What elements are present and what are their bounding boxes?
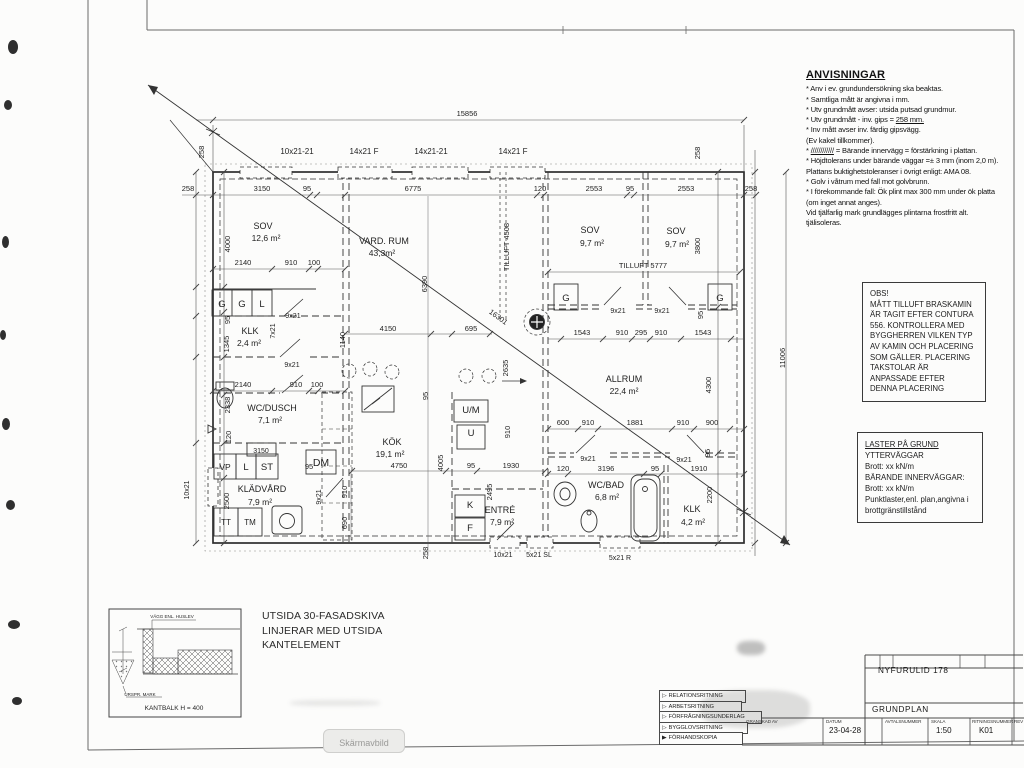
plan-label: 43,3m² [369, 248, 396, 258]
plan-label: 4150 [380, 324, 397, 333]
plan-label: 910 [582, 418, 595, 427]
text-line: * Inv mått avser inv. färdig gipsvägg. [806, 125, 1018, 135]
plan-label: 1881 [627, 418, 644, 427]
scan-smudge [737, 641, 765, 655]
plan-label: 19,1 m² [376, 449, 405, 459]
plan-label: 100 [311, 380, 324, 389]
plan-label: 95 [696, 311, 705, 319]
laster-pa-grund-box: LASTER PÅ GRUNDYTTERVÄGGARBrott: xx kN/m… [857, 432, 983, 523]
plan-label: 11006 [778, 348, 787, 368]
plan-label: 95 [303, 184, 311, 193]
anvisningar-notes: ANVISNINGAR * Anv i ev. grundundersöknin… [806, 70, 1018, 228]
plan-label: L [259, 299, 264, 310]
plan-label: 4005 [436, 455, 445, 472]
plan-label: 9x21 [285, 313, 300, 320]
plan-label: 3150 [254, 184, 271, 193]
text-line: (Ev kakel tillkommer). [806, 136, 1018, 146]
plan-label: 910 [285, 258, 298, 267]
plan-label: 9,7 m² [580, 238, 604, 248]
plan-label: 3196 [598, 464, 615, 473]
text-line: ANPASSADE EFTER [870, 374, 978, 385]
scan-artifact [12, 697, 22, 705]
scan-artifact [4, 100, 12, 110]
text-line: TAKSTOLAR ÄR [870, 363, 978, 374]
text-line: Vid tjälfarlig mark grundlägges plintarn… [806, 208, 1018, 218]
plan-label: 258 [182, 184, 195, 193]
plan-label: 3800 [693, 238, 702, 255]
plan-label: KLÄDVÅRD [238, 484, 287, 494]
plan-label: 22,4 m² [610, 386, 639, 396]
text-line: DENNA PLACERING [870, 384, 978, 395]
plan-label: 910 [290, 380, 303, 389]
plan-label: 900 [706, 418, 719, 427]
plan-label: F [467, 523, 473, 534]
avtalsnummer-label: AVTALSNUMMER [885, 719, 921, 724]
plan-label: 95 [421, 392, 430, 400]
plan-label: 14x21 F [499, 147, 528, 156]
plan-label: KLK [683, 504, 700, 514]
text-line: * //////////// = Bärande innervägg = för… [806, 146, 1018, 156]
scan-smudge [700, 690, 810, 728]
plan-label: 690 [340, 517, 349, 530]
plan-label: 6,8 m² [595, 492, 619, 502]
screenshot-filename: Skärmavbild [339, 738, 389, 748]
plan-label: U [468, 428, 475, 439]
plan-label: 695 [465, 324, 478, 333]
plan-label: 258 [421, 547, 430, 560]
plan-label: 120 [224, 431, 233, 444]
datum-value: 23-04-28 [829, 726, 861, 735]
ritningsnummer-value: K01 [979, 726, 993, 735]
arrow-icon: ▷ [662, 702, 667, 711]
plan-label: 10x21-21 [280, 147, 314, 156]
rev-label: REV [1014, 719, 1023, 724]
plan-label: G [562, 293, 569, 304]
text-line: * Samtliga mått är angivna i mm. [806, 95, 1018, 105]
plan-label: 910 [677, 418, 690, 427]
plan-label: 910 [655, 328, 668, 337]
plan-label: 6390 [420, 276, 429, 293]
text-line: * Höjdtolerans under bärande väggar =± 3… [806, 156, 1018, 166]
plan-label: 15856 [457, 109, 478, 118]
text-line: tjälisoleras. [806, 218, 1018, 228]
ritningsnummer-label: RITNINGSNUMMER [972, 719, 1013, 724]
plan-label: TILLUFT 4508 [502, 223, 511, 271]
plan-label: 10x21 [493, 552, 512, 559]
plan-label: 120 [557, 464, 570, 473]
plan-label: U/M [462, 405, 480, 416]
plan-label: 258 [693, 147, 702, 160]
plan-label: 2500 [222, 493, 231, 510]
text-line: SOM GÄLLER. PLACERING [870, 353, 978, 364]
plan-label: 95 [223, 316, 232, 324]
plan-label: 5x21 SL [526, 552, 552, 559]
scan-artifact [8, 620, 20, 629]
plan-label: 5x21 R [609, 555, 631, 562]
plan-label: 600 [557, 418, 570, 427]
plan-label: 2,4 m² [237, 338, 261, 348]
anvisningar-title: ANVISNINGAR [806, 70, 1018, 80]
plan-label: WC/BAD [588, 480, 625, 490]
plan-label: 1345 [222, 336, 231, 353]
plan-label: VP [219, 462, 231, 472]
plan-label: ENTRÉ [485, 505, 516, 515]
text-line: OBS! [870, 289, 978, 300]
plan-label: 9x21 [284, 362, 299, 369]
text-line: 556. KONTROLLERA MED [870, 321, 978, 332]
plan-label: 4300 [704, 377, 713, 394]
text-line: * Utv grundmått - inv. gips = 258 mm. [806, 115, 1018, 125]
text-line: Brott: xx kN/m [865, 461, 975, 472]
text-line: * Utv grundmått avser: utsida putsad gru… [806, 105, 1018, 115]
plan-label: 120 [534, 184, 547, 193]
text-line: Brott: xx kN/m [865, 483, 975, 494]
project-name: NYFURULID 178 [878, 666, 949, 675]
plan-label: 4,2 m² [681, 517, 705, 527]
text-line: BYGGHERREN VILKEN TYP [870, 331, 978, 342]
plan-label: 2553 [678, 184, 695, 193]
plan-label: KANTBALK H = 400 [145, 705, 204, 712]
text-line: Punktlaster,enl. plan,angivna i [865, 494, 975, 505]
scan-artifact [2, 418, 10, 430]
exterior-walls [205, 164, 752, 551]
plan-label: 95 [626, 184, 634, 193]
plan-label: 258 [197, 146, 206, 159]
obs-note-box: OBS!MÅTT TILLUFT BRASKAMINÄR TAGIT EFTER… [862, 282, 986, 402]
text-line: AV KAMIN OCH PLACERING [870, 342, 978, 353]
plan-label: 2140 [235, 380, 252, 389]
plan-label: 910 [503, 426, 512, 439]
interior-walls [213, 172, 737, 543]
text-line: brottgränstillstånd [865, 505, 975, 516]
skala-value: 1:50 [936, 726, 952, 735]
drawing-title: GRUNDPLAN [872, 705, 929, 714]
text-line: * Anv i ev. grundundersökning ska beakta… [806, 84, 1018, 94]
detail-note-line: LINJERAR MED UTSIDA [262, 624, 385, 639]
plan-label: 2495 [485, 484, 494, 501]
plan-label: 9,7 m² [665, 239, 689, 249]
plan-label: 1140 [338, 332, 347, 348]
plan-label: 9x21 [676, 457, 691, 464]
text-line: Plattans buktighetstoleranser i övrigt e… [806, 167, 1018, 177]
plan-label: 2553 [586, 184, 603, 193]
plan-label: 2140 [235, 258, 252, 267]
plan-label: 258 [745, 184, 758, 193]
arrow-icon: ▷ [662, 723, 667, 732]
plan-label: G [218, 299, 225, 310]
plan-label: ST [261, 462, 273, 473]
plan-label: VARD. RUM [359, 236, 409, 246]
datum-label: DATUM [826, 719, 842, 724]
anvisningar-lines: * Anv i ev. grundundersökning ska beakta… [806, 84, 1018, 228]
scan-artifact [2, 236, 9, 248]
arrow-filled-icon: ▶ [662, 734, 667, 743]
plan-label: 1910 [691, 464, 708, 473]
obs-lines: OBS!MÅTT TILLUFT BRASKAMINÄR TAGIT EFTER… [870, 289, 978, 395]
plan-label: 7,1 m² [258, 415, 282, 425]
plan-label: 14x21-21 [414, 147, 448, 156]
plan-label: 14x21 F [350, 147, 379, 156]
plan-label: G [238, 299, 245, 310]
plan-label: VÄGG ENL. HUSLEV [150, 613, 194, 619]
plan-label: 10x21 [184, 480, 191, 499]
plan-label: 7,9 m² [490, 517, 514, 527]
plan-label: 95 [703, 449, 712, 457]
plan-label: 910 [340, 486, 349, 499]
plan-label: TILLUFT 5777 [619, 261, 667, 270]
plan-label: 6775 [405, 184, 422, 193]
plan-label: 9x21 [316, 489, 323, 504]
text-line: YTTERVÄGGAR [865, 450, 975, 461]
text-line: LASTER PÅ GRUND [865, 439, 975, 450]
plan-label: 2635 [501, 360, 510, 377]
plan-label: 1543 [574, 328, 591, 337]
skala-label: SKALA [931, 719, 945, 724]
plan-label: 1543 [695, 328, 712, 337]
plan-label: 295 [635, 328, 648, 337]
detail-note-line: KANTELEMENT [262, 638, 385, 653]
scan-artifact [6, 500, 15, 510]
plan-label: 2338 [223, 397, 232, 414]
plan-label: 7x21 [270, 323, 277, 338]
door-symbols [280, 287, 704, 540]
plan-label: 3150 [253, 448, 269, 455]
plan-label: 100 [308, 258, 321, 267]
plan-label: 95 [467, 461, 475, 470]
plan-label: SOV [253, 221, 272, 231]
plan-label: TT [221, 518, 231, 527]
plan-label: G [716, 293, 723, 304]
text-line: (om inget annat anges). [806, 198, 1018, 208]
plan-label: L [243, 462, 248, 473]
scan-smudge [290, 700, 380, 706]
category-forhandskopia: ▶FÖRHANDSKOPIA [659, 732, 743, 745]
kantbalk-detail [109, 609, 241, 717]
text-line: ÄR TAGIT EFTER CONTURA [870, 310, 978, 321]
scan-artifact [0, 330, 6, 340]
plan-label: 7,9 m² [248, 497, 272, 507]
plan-label: 910 [616, 328, 629, 337]
arrow-icon: ▷ [662, 713, 667, 722]
plan-label: 95 [651, 464, 659, 473]
detail-note-line: UTSIDA 30-FASADSKIVA [262, 609, 385, 624]
screenshot-filename-tab: Skärmavbild [323, 729, 405, 753]
plan-label: SOV [666, 226, 685, 236]
plan-label: 9x21 [654, 308, 669, 315]
plan-label: 1930 [503, 461, 520, 470]
plan-label: SOV [580, 225, 599, 235]
plan-label: KLK [241, 326, 258, 336]
plan-label: URSPR. MARK [124, 692, 155, 697]
plan-label: 4750 [391, 461, 408, 470]
plan-label: 2200 [705, 487, 714, 504]
plan-label: TM [244, 518, 256, 527]
plan-label: KÖK [382, 437, 401, 447]
arrow-icon: ▷ [662, 692, 667, 701]
text-line: MÅTT TILLUFT BRASKAMIN [870, 300, 978, 311]
plan-label: 9x21 [610, 308, 625, 315]
plan-label: 9x21 [580, 456, 595, 463]
plan-label: WC/DUSCH [247, 403, 297, 413]
scanned-drawing-sheet: 1585610x21-2114x21 F14x21-2114x21 F25825… [0, 0, 1024, 768]
plan-label: 4000 [223, 236, 232, 253]
plan-label: 12,6 m² [252, 233, 281, 243]
plan-label: ALLRUM [606, 374, 643, 384]
plan-label: DM [313, 457, 329, 469]
detail-note: UTSIDA 30-FASADSKIVA LINJERAR MED UTSIDA… [262, 609, 385, 653]
plan-label: K [467, 500, 474, 511]
scan-artifact [8, 40, 18, 54]
fixtures [208, 172, 732, 541]
laster-lines: LASTER PÅ GRUNDYTTERVÄGGARBrott: xx kN/m… [865, 439, 975, 516]
text-line: * Golv i våtrum med fall mot golvbrunn. [806, 177, 1018, 187]
text-line: BÄRANDE INNERVÄGGAR: [865, 472, 975, 483]
text-line: * I förekommande fall: Ök plint max 300 … [806, 187, 1018, 197]
